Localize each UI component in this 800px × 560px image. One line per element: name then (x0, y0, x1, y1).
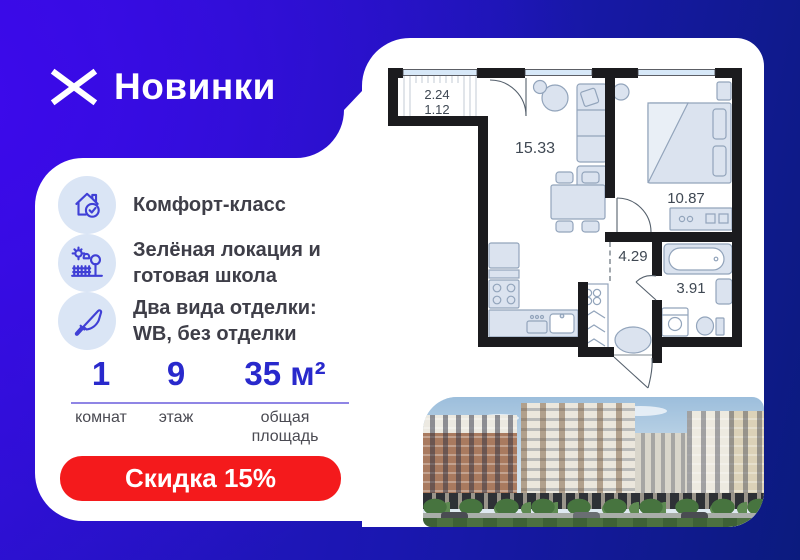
brand-name: Новинки (114, 66, 276, 108)
feature-comfort-class: Комфорт-класс (58, 176, 345, 234)
feature-label: Зелёная локация и готовая школа (133, 237, 345, 289)
chair (556, 172, 573, 183)
stats-divider (71, 402, 349, 404)
feature-finishing: Два вида отделки: WB, без отделки (58, 292, 345, 350)
feature-list: Комфорт-класс Зелёная локация и готовая … (58, 176, 345, 350)
brand-x-icon (48, 68, 100, 106)
stat-area-value: 35 м² (215, 354, 355, 394)
stove (489, 280, 519, 308)
building-center (521, 403, 635, 501)
chair (582, 221, 599, 232)
apartment-stats: 1 комнат 9 этаж 35 м² общая площадь (65, 354, 355, 446)
washing-machine (662, 308, 688, 336)
bathroom-area: 3.91 (676, 280, 705, 297)
bathroom-sink (716, 279, 732, 304)
building-left (423, 415, 517, 501)
microwave (527, 321, 547, 333)
bushes (423, 518, 764, 527)
fridge (489, 243, 519, 268)
windows (403, 70, 715, 76)
pouf (615, 327, 651, 353)
building-background (631, 433, 689, 501)
park-icon (58, 234, 116, 292)
bedside-lamp (613, 84, 629, 100)
feature-label: Комфорт-класс (133, 192, 345, 218)
stat-rooms-value: 1 (65, 354, 137, 394)
stat-rooms-label: комнат (65, 408, 137, 427)
chair (582, 172, 599, 183)
living-kitchen-area: 15.33 (515, 140, 555, 157)
pillow (713, 146, 726, 176)
trowel-icon (58, 292, 116, 350)
dining-table (551, 185, 605, 219)
feature-green-location: Зелёная локация и готовая школа (58, 234, 345, 292)
stat-floor: 9 этаж (137, 354, 215, 446)
feature-label: Два вида отделки: WB, без отделки (133, 295, 345, 347)
hallway-area: 4.29 (618, 248, 647, 265)
balcony-area-counted: 1.12 (424, 102, 449, 117)
brand-logo: Новинки (48, 66, 276, 108)
building-right (687, 411, 764, 501)
pillow (713, 109, 726, 139)
buildings-photo (423, 397, 764, 527)
toilet (697, 317, 714, 335)
stat-area-label: общая площадь (215, 408, 355, 446)
chair (556, 221, 573, 232)
balcony-area-total: 2.24 (424, 87, 449, 102)
kitchen-cabinet (489, 270, 519, 278)
promo-banner: Новинки Комфорт-класс (0, 0, 800, 560)
stat-floor-value: 9 (137, 354, 215, 394)
stat-rooms: 1 комнат (65, 354, 137, 446)
discount-button[interactable]: Скидка 15% (60, 456, 341, 501)
stat-floor-label: этаж (137, 408, 215, 427)
floor-plan: 2.24 1.12 15.33 10.87 4.29 3.91 (386, 58, 746, 394)
chair (534, 81, 547, 94)
bedroom-area: 10.87 (667, 190, 705, 207)
stat-area: 35 м² общая площадь (215, 354, 355, 446)
bedside-shelf (717, 82, 731, 100)
house-check-icon (58, 176, 116, 234)
